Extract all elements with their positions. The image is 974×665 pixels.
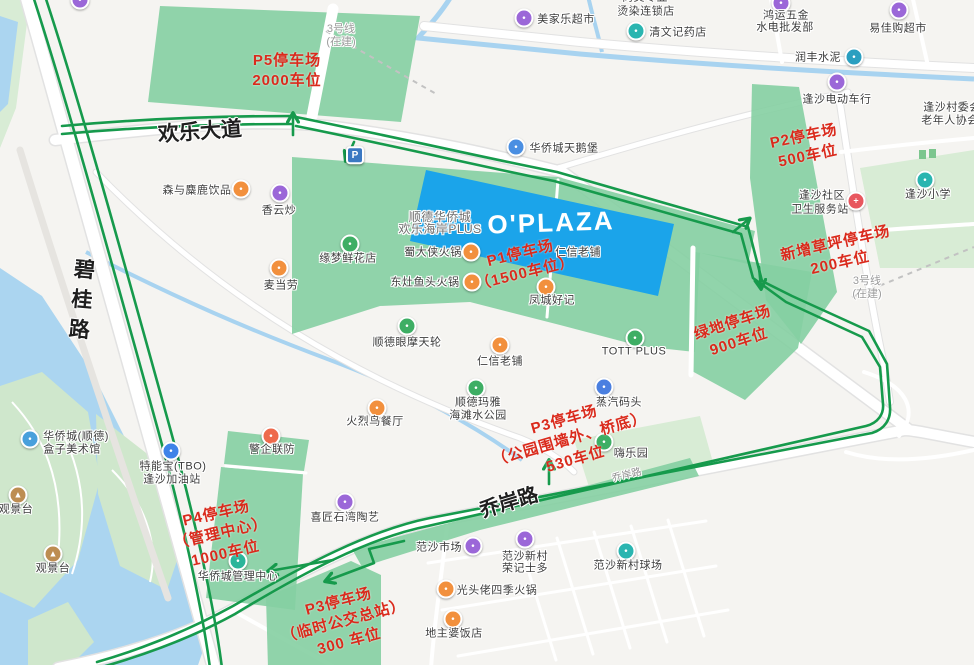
hotpot-icon[interactable]: •	[437, 580, 456, 599]
stadium-icon[interactable]: •	[617, 542, 636, 561]
ceramics-shop-icon[interactable]: •	[336, 493, 355, 512]
market-icon[interactable]: •	[464, 537, 483, 556]
restaurant-icon[interactable]: •	[444, 610, 463, 629]
parking-zone-qiaoan-strip	[352, 458, 699, 567]
ferris-wheel-icon[interactable]: •	[398, 317, 417, 336]
gas-station-icon[interactable]: •	[162, 442, 181, 461]
parking-zone-layer	[148, 6, 837, 665]
police-icon[interactable]: •	[262, 427, 281, 446]
parking-marker[interactable]: P	[346, 146, 364, 164]
wharf-icon[interactable]: •	[595, 378, 614, 397]
parking-zone-p5	[148, 6, 420, 122]
drinks-shop-icon[interactable]: •	[232, 180, 251, 199]
hotpot-icon[interactable]: •	[462, 243, 481, 262]
playground-icon[interactable]: •	[595, 433, 614, 452]
museum-icon[interactable]: •	[21, 430, 40, 449]
hotpot-icon[interactable]: •	[463, 273, 482, 292]
landmark-icon[interactable]: •	[507, 138, 526, 157]
management-center-icon[interactable]: •	[229, 552, 248, 571]
shop-icon[interactable]: •	[516, 530, 535, 549]
restaurant-icon[interactable]: •	[368, 399, 387, 418]
supermarket-icon[interactable]: •	[515, 9, 534, 28]
school-icon[interactable]: •	[916, 171, 935, 190]
map-canvas[interactable]: •美家乐超市尚美专业烫染连锁店•清文记药店•鸿运五金水电批发部•易佳购超市•润丰…	[0, 0, 974, 665]
viewpoint-icon[interactable]: ▲	[44, 545, 63, 564]
restaurant-icon[interactable]: •	[537, 278, 556, 297]
pharmacy-icon[interactable]: •	[627, 22, 646, 41]
supermarket-icon[interactable]: •	[890, 1, 909, 20]
restaurant-icon[interactable]: •	[271, 184, 290, 203]
restaurant-icon[interactable]: •	[491, 336, 510, 355]
health-station-icon[interactable]: +	[847, 192, 866, 211]
water-park-icon[interactable]: •	[467, 379, 486, 398]
viewpoint-icon[interactable]: ▲	[9, 486, 28, 505]
map-graphics	[0, 0, 974, 665]
flower-shop-icon[interactable]: •	[341, 235, 360, 254]
ebike-shop-icon[interactable]: •	[828, 73, 847, 92]
cement-plant-icon[interactable]: •	[845, 48, 864, 67]
restaurant-icon[interactable]: •	[270, 259, 289, 278]
mall-icon[interactable]: •	[626, 329, 645, 348]
